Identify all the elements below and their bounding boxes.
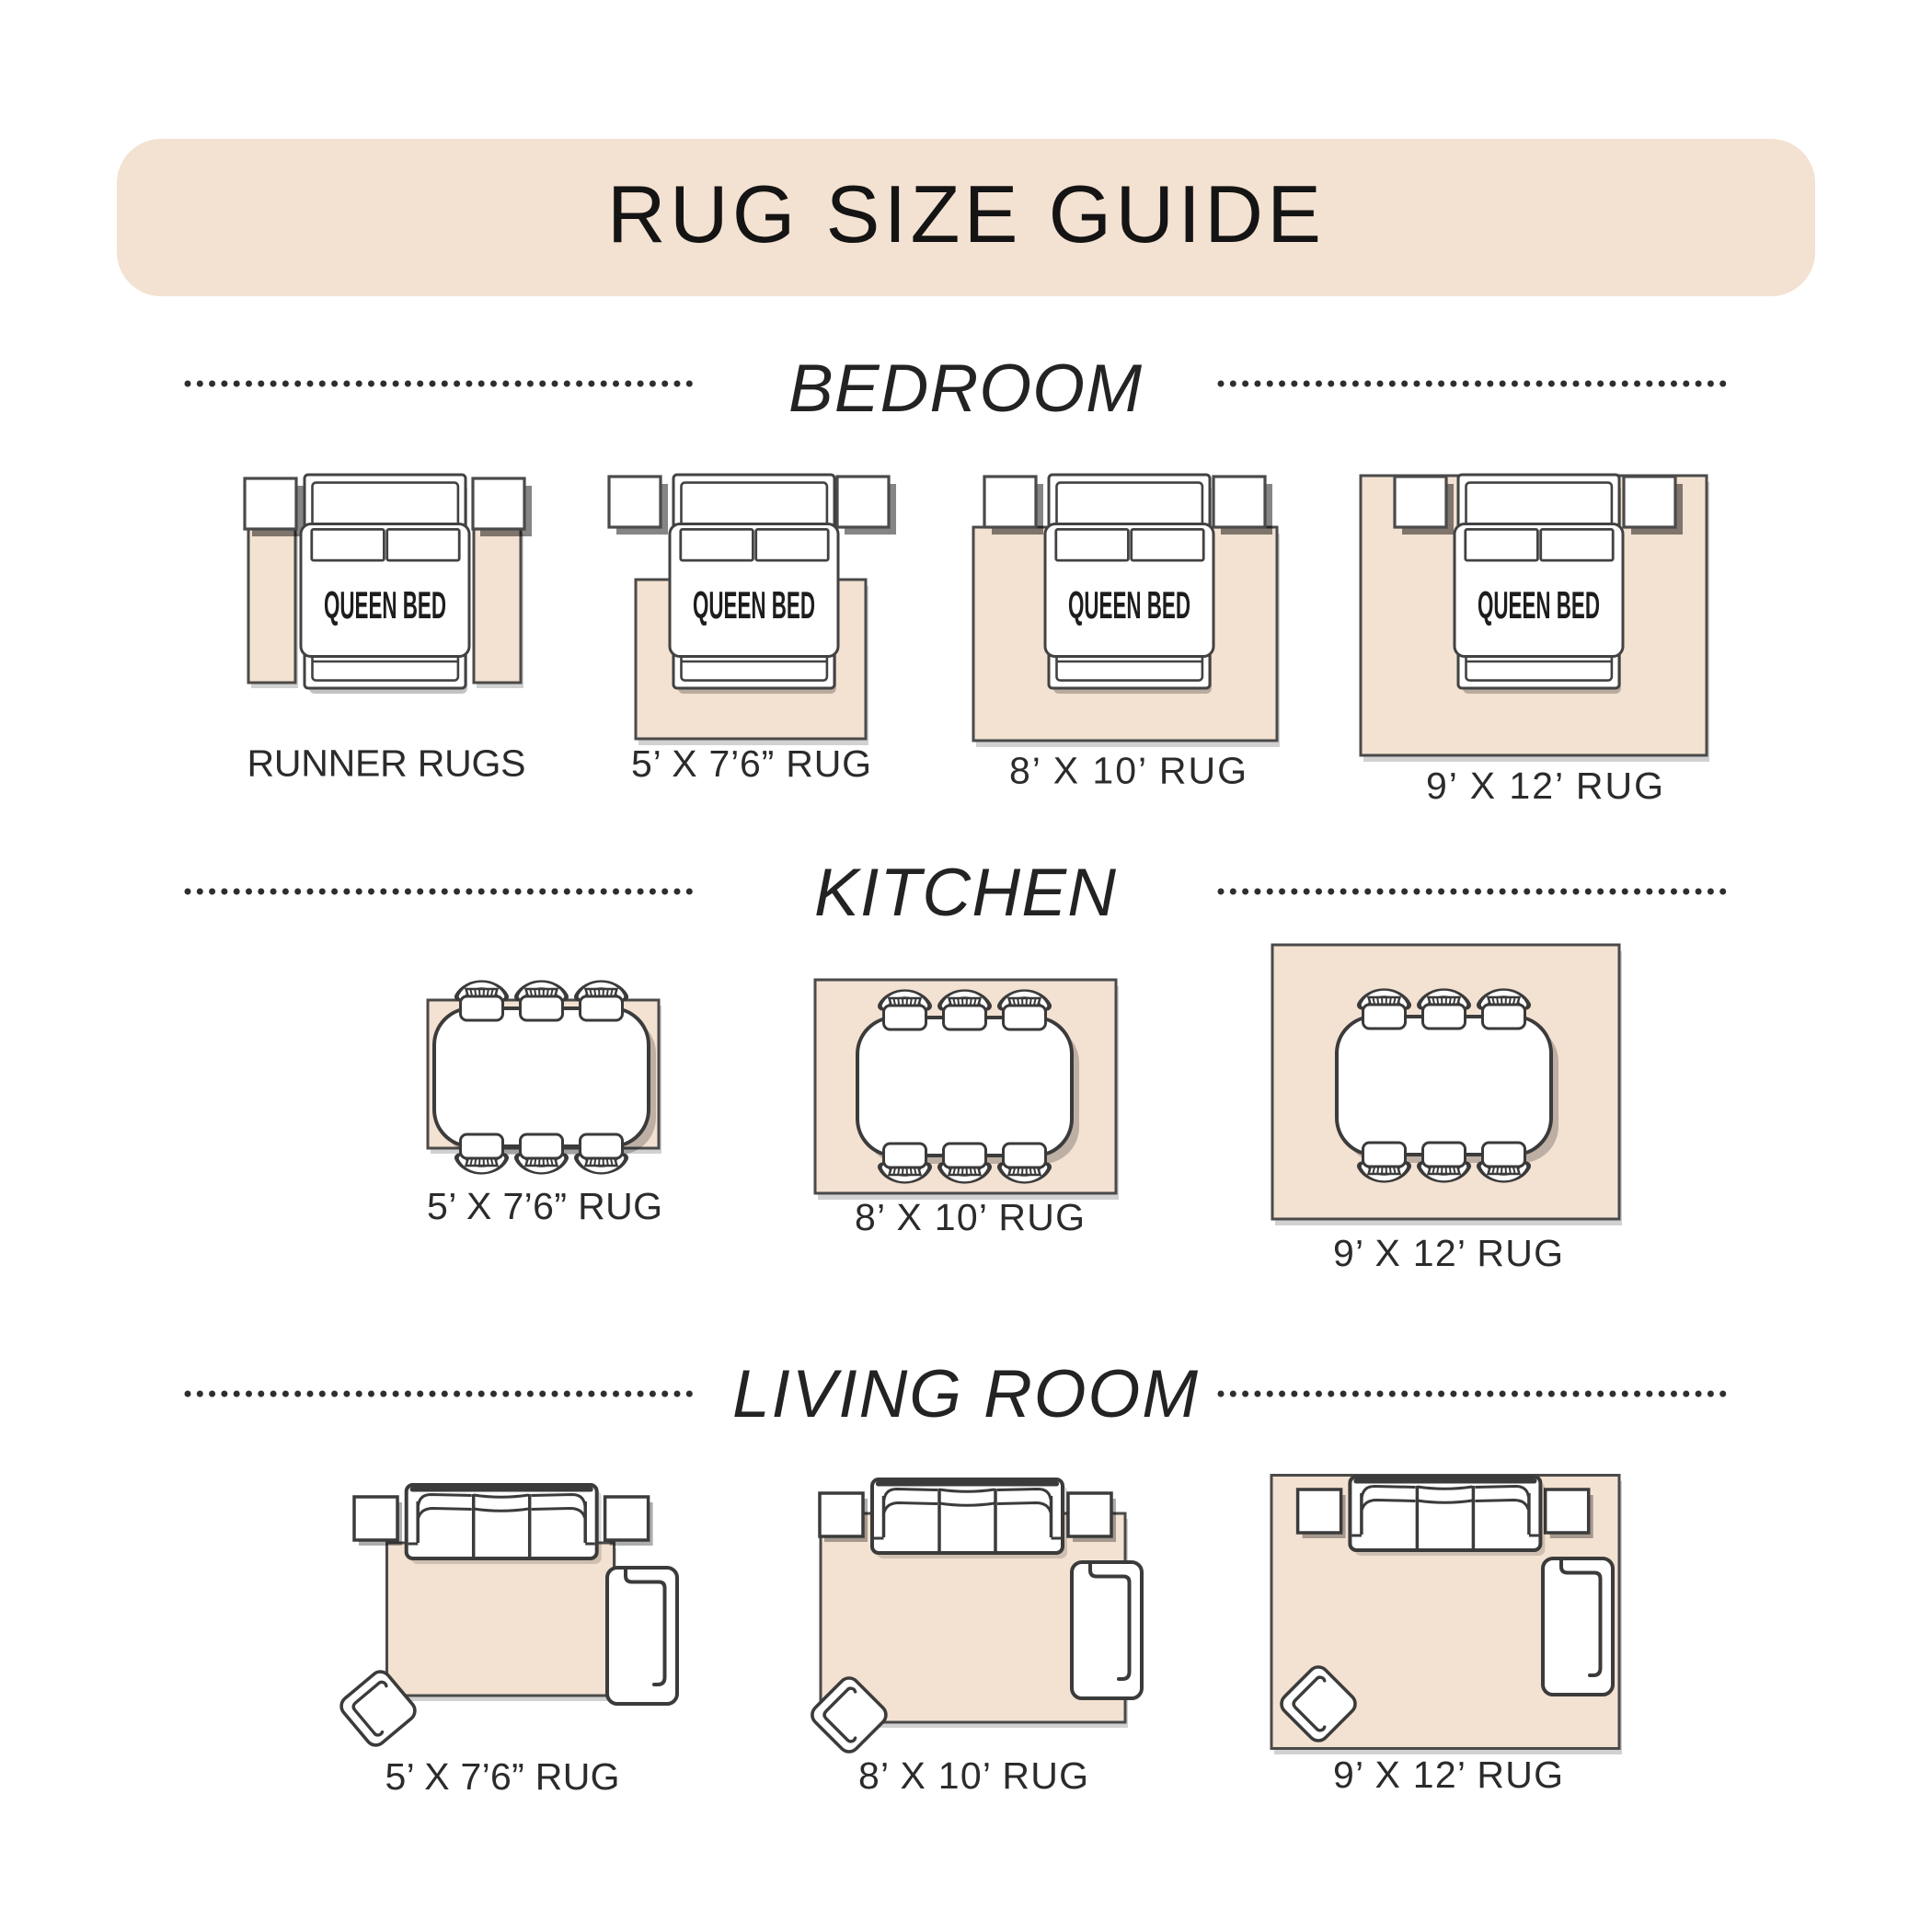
svg-text:8’ X 10’ RUG: 8’ X 10’ RUG bbox=[858, 1754, 1088, 1797]
svg-text:RUNNER RUGS: RUNNER RUGS bbox=[247, 742, 526, 785]
svg-text:9’ X 12’ RUG: 9’ X 12’ RUG bbox=[1333, 1232, 1563, 1274]
svg-text:5’ X 7’6” RUG: 5’ X 7’6” RUG bbox=[385, 1755, 620, 1798]
svg-text:KITCHEN: KITCHEN bbox=[814, 856, 1116, 930]
svg-text:8’ X 10’ RUG: 8’ X 10’ RUG bbox=[1009, 750, 1247, 792]
svg-text:RUG SIZE GUIDE: RUG SIZE GUIDE bbox=[607, 168, 1321, 259]
svg-text:BEDROOM: BEDROOM bbox=[788, 351, 1142, 426]
svg-text:9’ X 12’ RUG: 9’ X 12’ RUG bbox=[1333, 1754, 1563, 1796]
svg-text:LIVING ROOM: LIVING ROOM bbox=[732, 1357, 1198, 1432]
svg-text:9’ X 12’ RUG: 9’ X 12’ RUG bbox=[1426, 765, 1663, 807]
svg-text:5’ X 7’6” RUG: 5’ X 7’6” RUG bbox=[631, 742, 871, 785]
svg-text:8’ X 10’ RUG: 8’ X 10’ RUG bbox=[855, 1196, 1085, 1238]
svg-text:5’ X 7’6” RUG: 5’ X 7’6” RUG bbox=[427, 1185, 662, 1227]
